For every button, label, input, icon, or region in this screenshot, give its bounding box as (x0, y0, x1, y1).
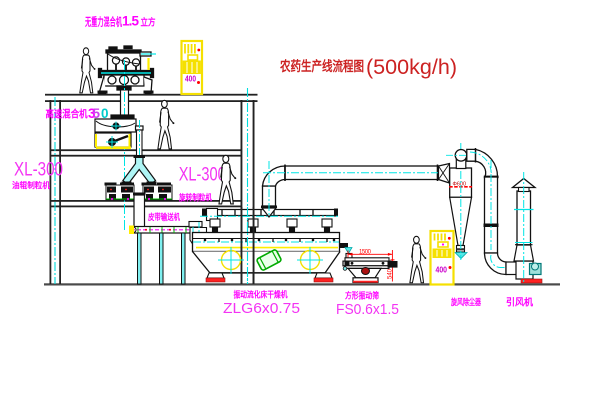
svg-text:(500kg/h): (500kg/h) (366, 56, 457, 79)
svg-text:农药生产线流程图: 农药生产线流程图 (279, 58, 364, 74)
svg-text:振动流化床干燥机: 振动流化床干燥机 (234, 290, 288, 300)
svg-text:皮带输送机: 皮带输送机 (147, 212, 180, 222)
svg-text:XL-300: XL-300 (179, 165, 226, 186)
svg-text:方形振动筛: 方形振动筛 (345, 291, 379, 301)
svg-text:ZLG6x0.75: ZLG6x0.75 (223, 300, 300, 317)
svg-text:旋转制粒机: 旋转制粒机 (178, 193, 212, 203)
svg-text:引风机: 引风机 (506, 297, 533, 309)
svg-text:油辊制粒机: 油辊制粒机 (12, 180, 50, 190)
svg-text:XL-300: XL-300 (14, 160, 63, 181)
svg-text:400: 400 (185, 75, 196, 84)
svg-text:无重力混合机: 无重力混合机 (84, 15, 122, 29)
svg-text:立方: 立方 (141, 17, 156, 29)
svg-text:旋风除尘器: 旋风除尘器 (450, 297, 481, 307)
svg-text:高速混合机: 高速混合机 (46, 108, 88, 121)
svg-text:1500: 1500 (359, 250, 372, 256)
svg-text:540: 540 (388, 268, 394, 279)
svg-text:400: 400 (436, 266, 448, 275)
svg-text:Φ600: Φ600 (453, 182, 467, 188)
svg-text:FS0.6x1.5: FS0.6x1.5 (336, 301, 399, 318)
svg-text:1.5: 1.5 (122, 14, 139, 29)
